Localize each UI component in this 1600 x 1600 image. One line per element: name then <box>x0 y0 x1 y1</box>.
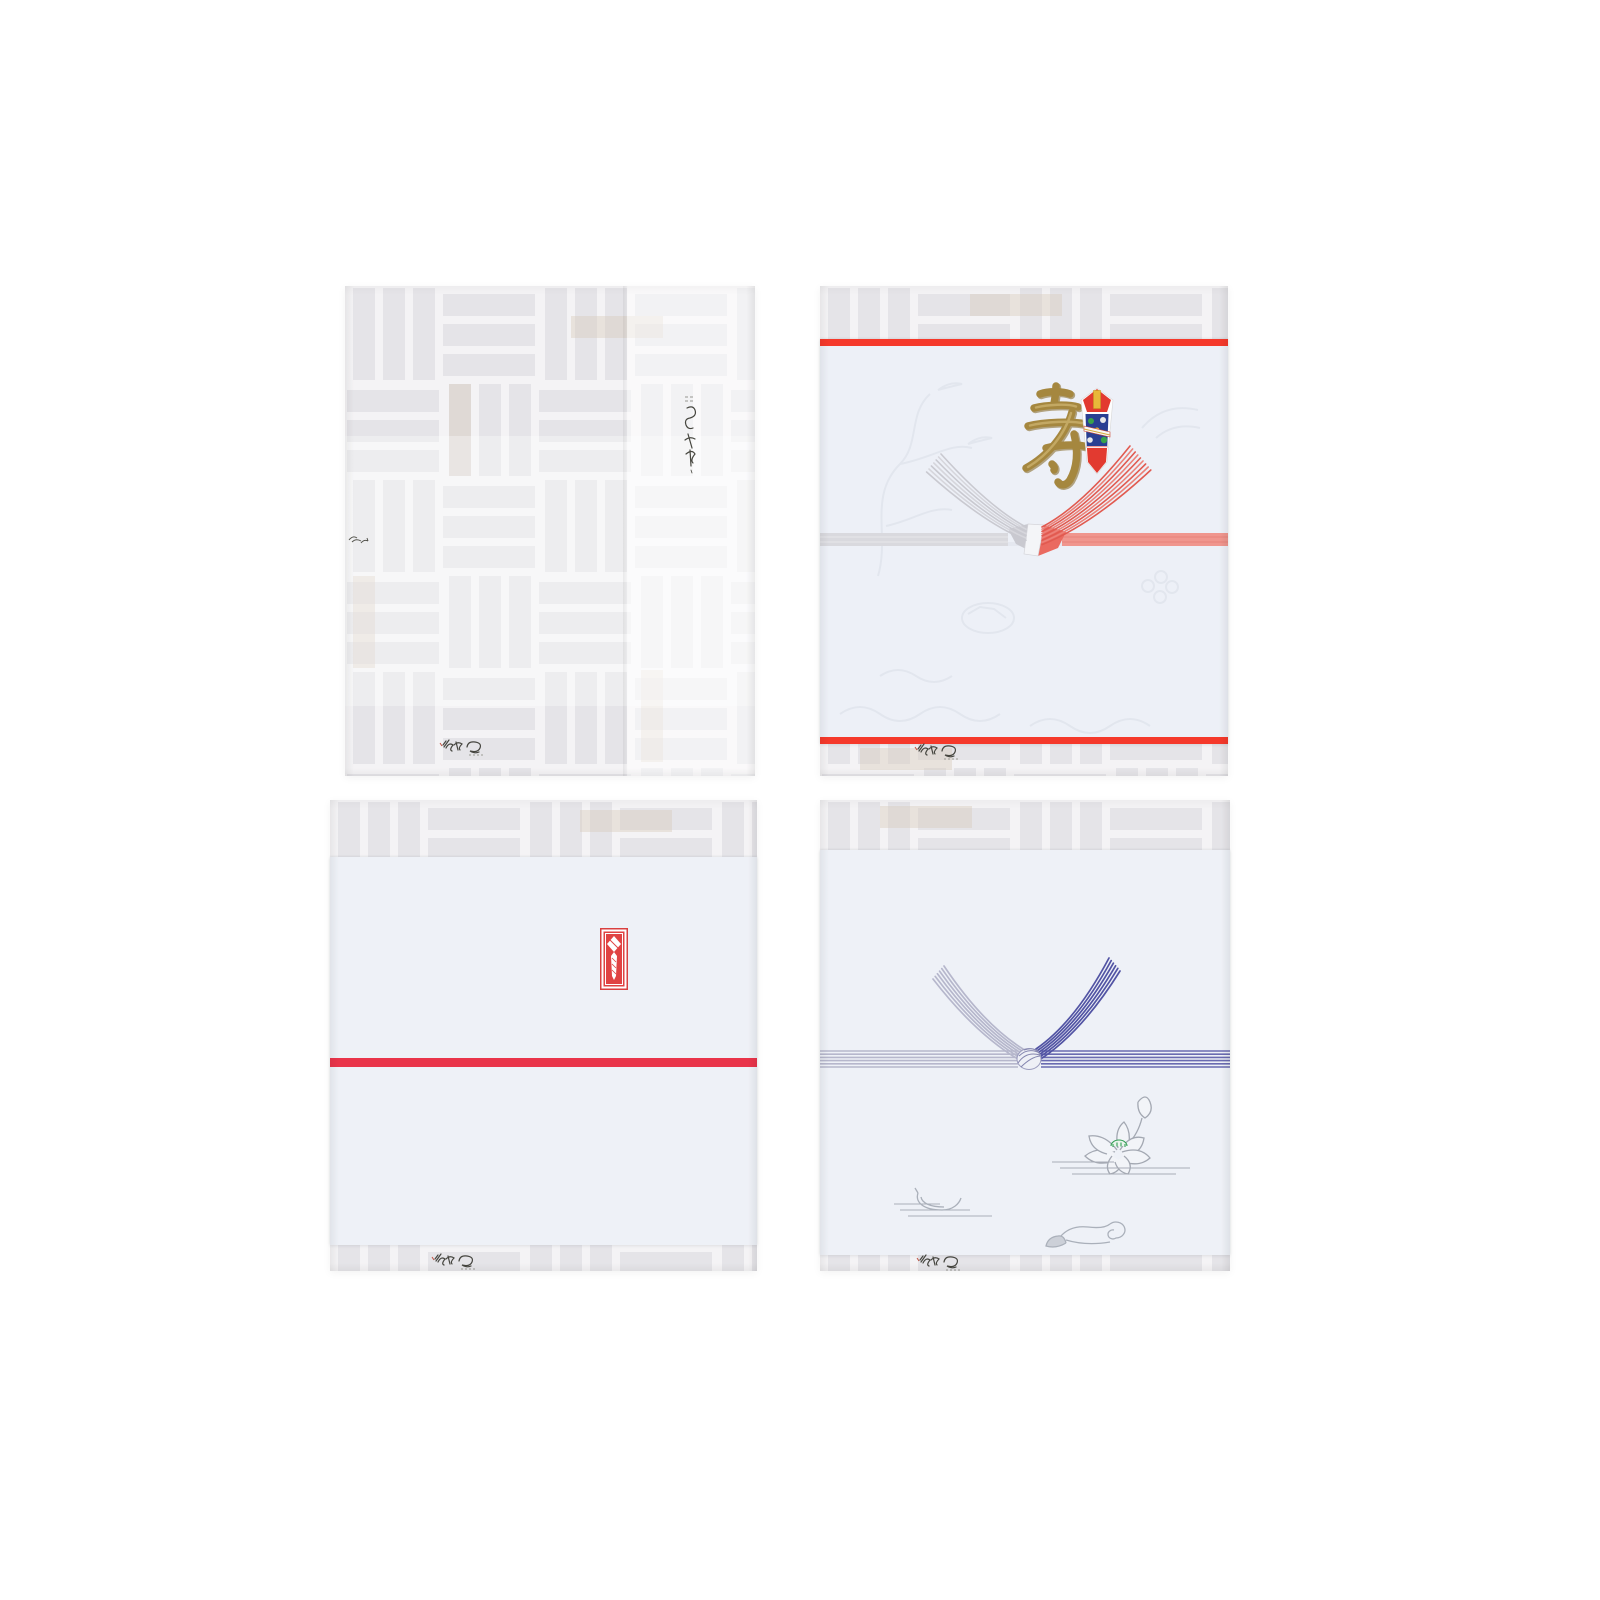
product-photo-stage: 寿 <box>0 0 1600 1600</box>
noshi-paper <box>820 339 1228 744</box>
package-buddhist-noshi <box>820 800 1230 1271</box>
paper-accent <box>580 810 672 832</box>
red-stripe <box>330 1058 757 1067</box>
bottom-border-line <box>820 737 1228 744</box>
noshi-paper <box>330 857 757 1245</box>
package-red-stripe-noshi <box>330 800 757 1271</box>
package-celebration-noshi: 寿 <box>820 286 1228 776</box>
paper-crease <box>820 542 1228 546</box>
paper-accent <box>970 294 1062 316</box>
noshi-paper <box>820 850 1230 1255</box>
top-border-line <box>820 339 1228 346</box>
paper-accent <box>860 748 952 770</box>
paper-fold-panel <box>627 286 755 776</box>
package-plain-wrap <box>345 286 755 776</box>
fold-seam <box>623 286 628 776</box>
paper-accent <box>880 806 972 828</box>
